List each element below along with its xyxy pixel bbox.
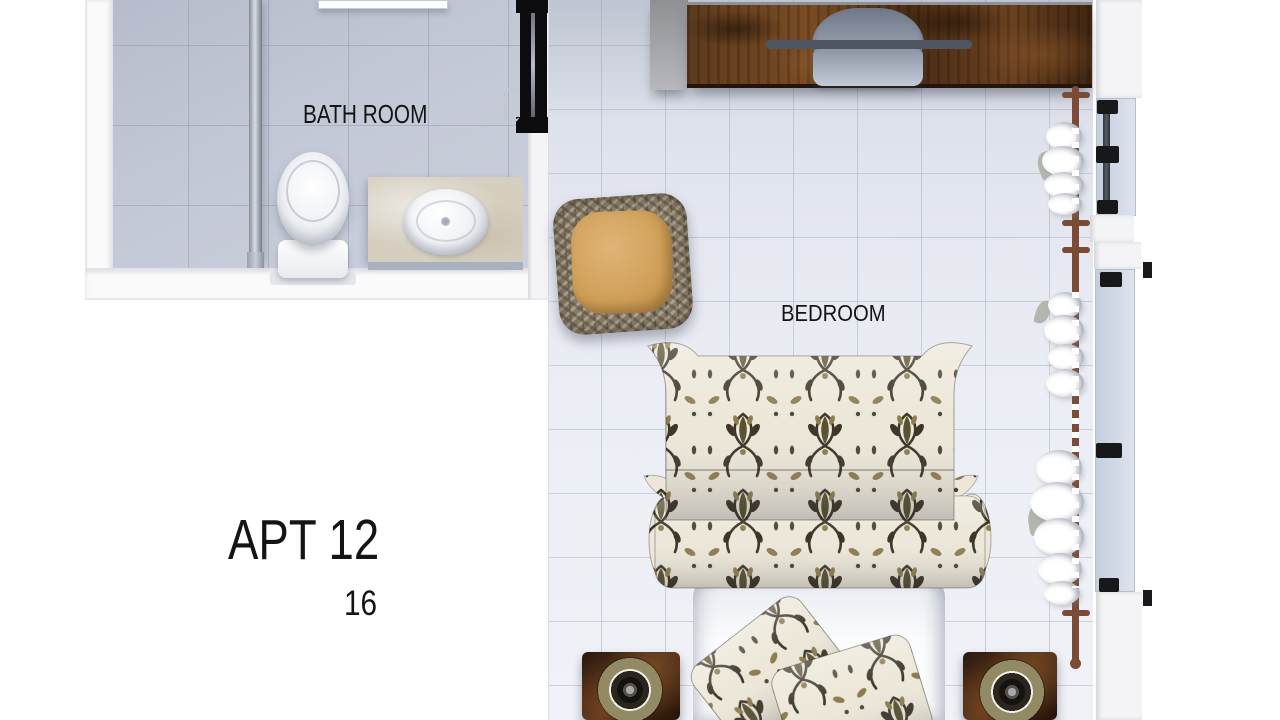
armchair-cushion (570, 209, 673, 314)
wall-pier (1096, 592, 1142, 720)
curtain-rod-finial (1062, 92, 1090, 98)
window-handle (1100, 272, 1122, 287)
bathroom-door (520, 0, 547, 132)
window-swing-mark (1143, 262, 1152, 278)
bathroom-wall-left (85, 0, 113, 300)
desk-chair-armrest (766, 40, 972, 49)
speaker-icon (597, 657, 663, 720)
desk-chair-seat (813, 49, 923, 86)
toilet (277, 152, 349, 246)
curtain-rod-finial (1062, 247, 1090, 253)
window-frame-block (1097, 100, 1118, 114)
nightstand-right (963, 652, 1057, 720)
curtain-rod-finial (1062, 610, 1090, 616)
window-frame-block (1096, 146, 1119, 163)
sink-drain (441, 217, 450, 226)
wall-pier (1096, 0, 1142, 98)
wicker-armchair (551, 191, 694, 336)
floorplan-canvas: BATH ROOM BEDROOM APT 12 16 (0, 0, 1280, 720)
curtain-rings (1072, 128, 1079, 212)
apartment-label: APT 12 (228, 507, 379, 573)
shower-screen (249, 0, 262, 268)
headboard-upper-cushion (648, 343, 972, 520)
curtain-rings (1072, 292, 1079, 588)
unit-number-label: 16 (344, 584, 377, 624)
window-frame-block (1097, 200, 1118, 214)
door-frame-top (516, 0, 551, 13)
bathroom-label: BATH ROOM (303, 99, 427, 130)
window-handle (1096, 443, 1122, 458)
nightstand-left (582, 652, 680, 720)
window-swing-mark (1143, 590, 1152, 606)
speaker-icon (979, 659, 1045, 720)
bathroom-window (318, 0, 448, 9)
window-lower (1095, 269, 1135, 592)
window-handle (1099, 578, 1119, 592)
door-frame-bottom (516, 117, 551, 133)
wall-pier (1094, 242, 1141, 269)
bedroom-label: BEDROOM (781, 300, 886, 327)
door-handle-icon (504, 88, 519, 122)
curtain-rod-end (1070, 658, 1081, 669)
curtain-rod-finial (1062, 220, 1090, 226)
wall-pier (1090, 215, 1134, 242)
bedroom-wall-segment (650, 0, 688, 90)
